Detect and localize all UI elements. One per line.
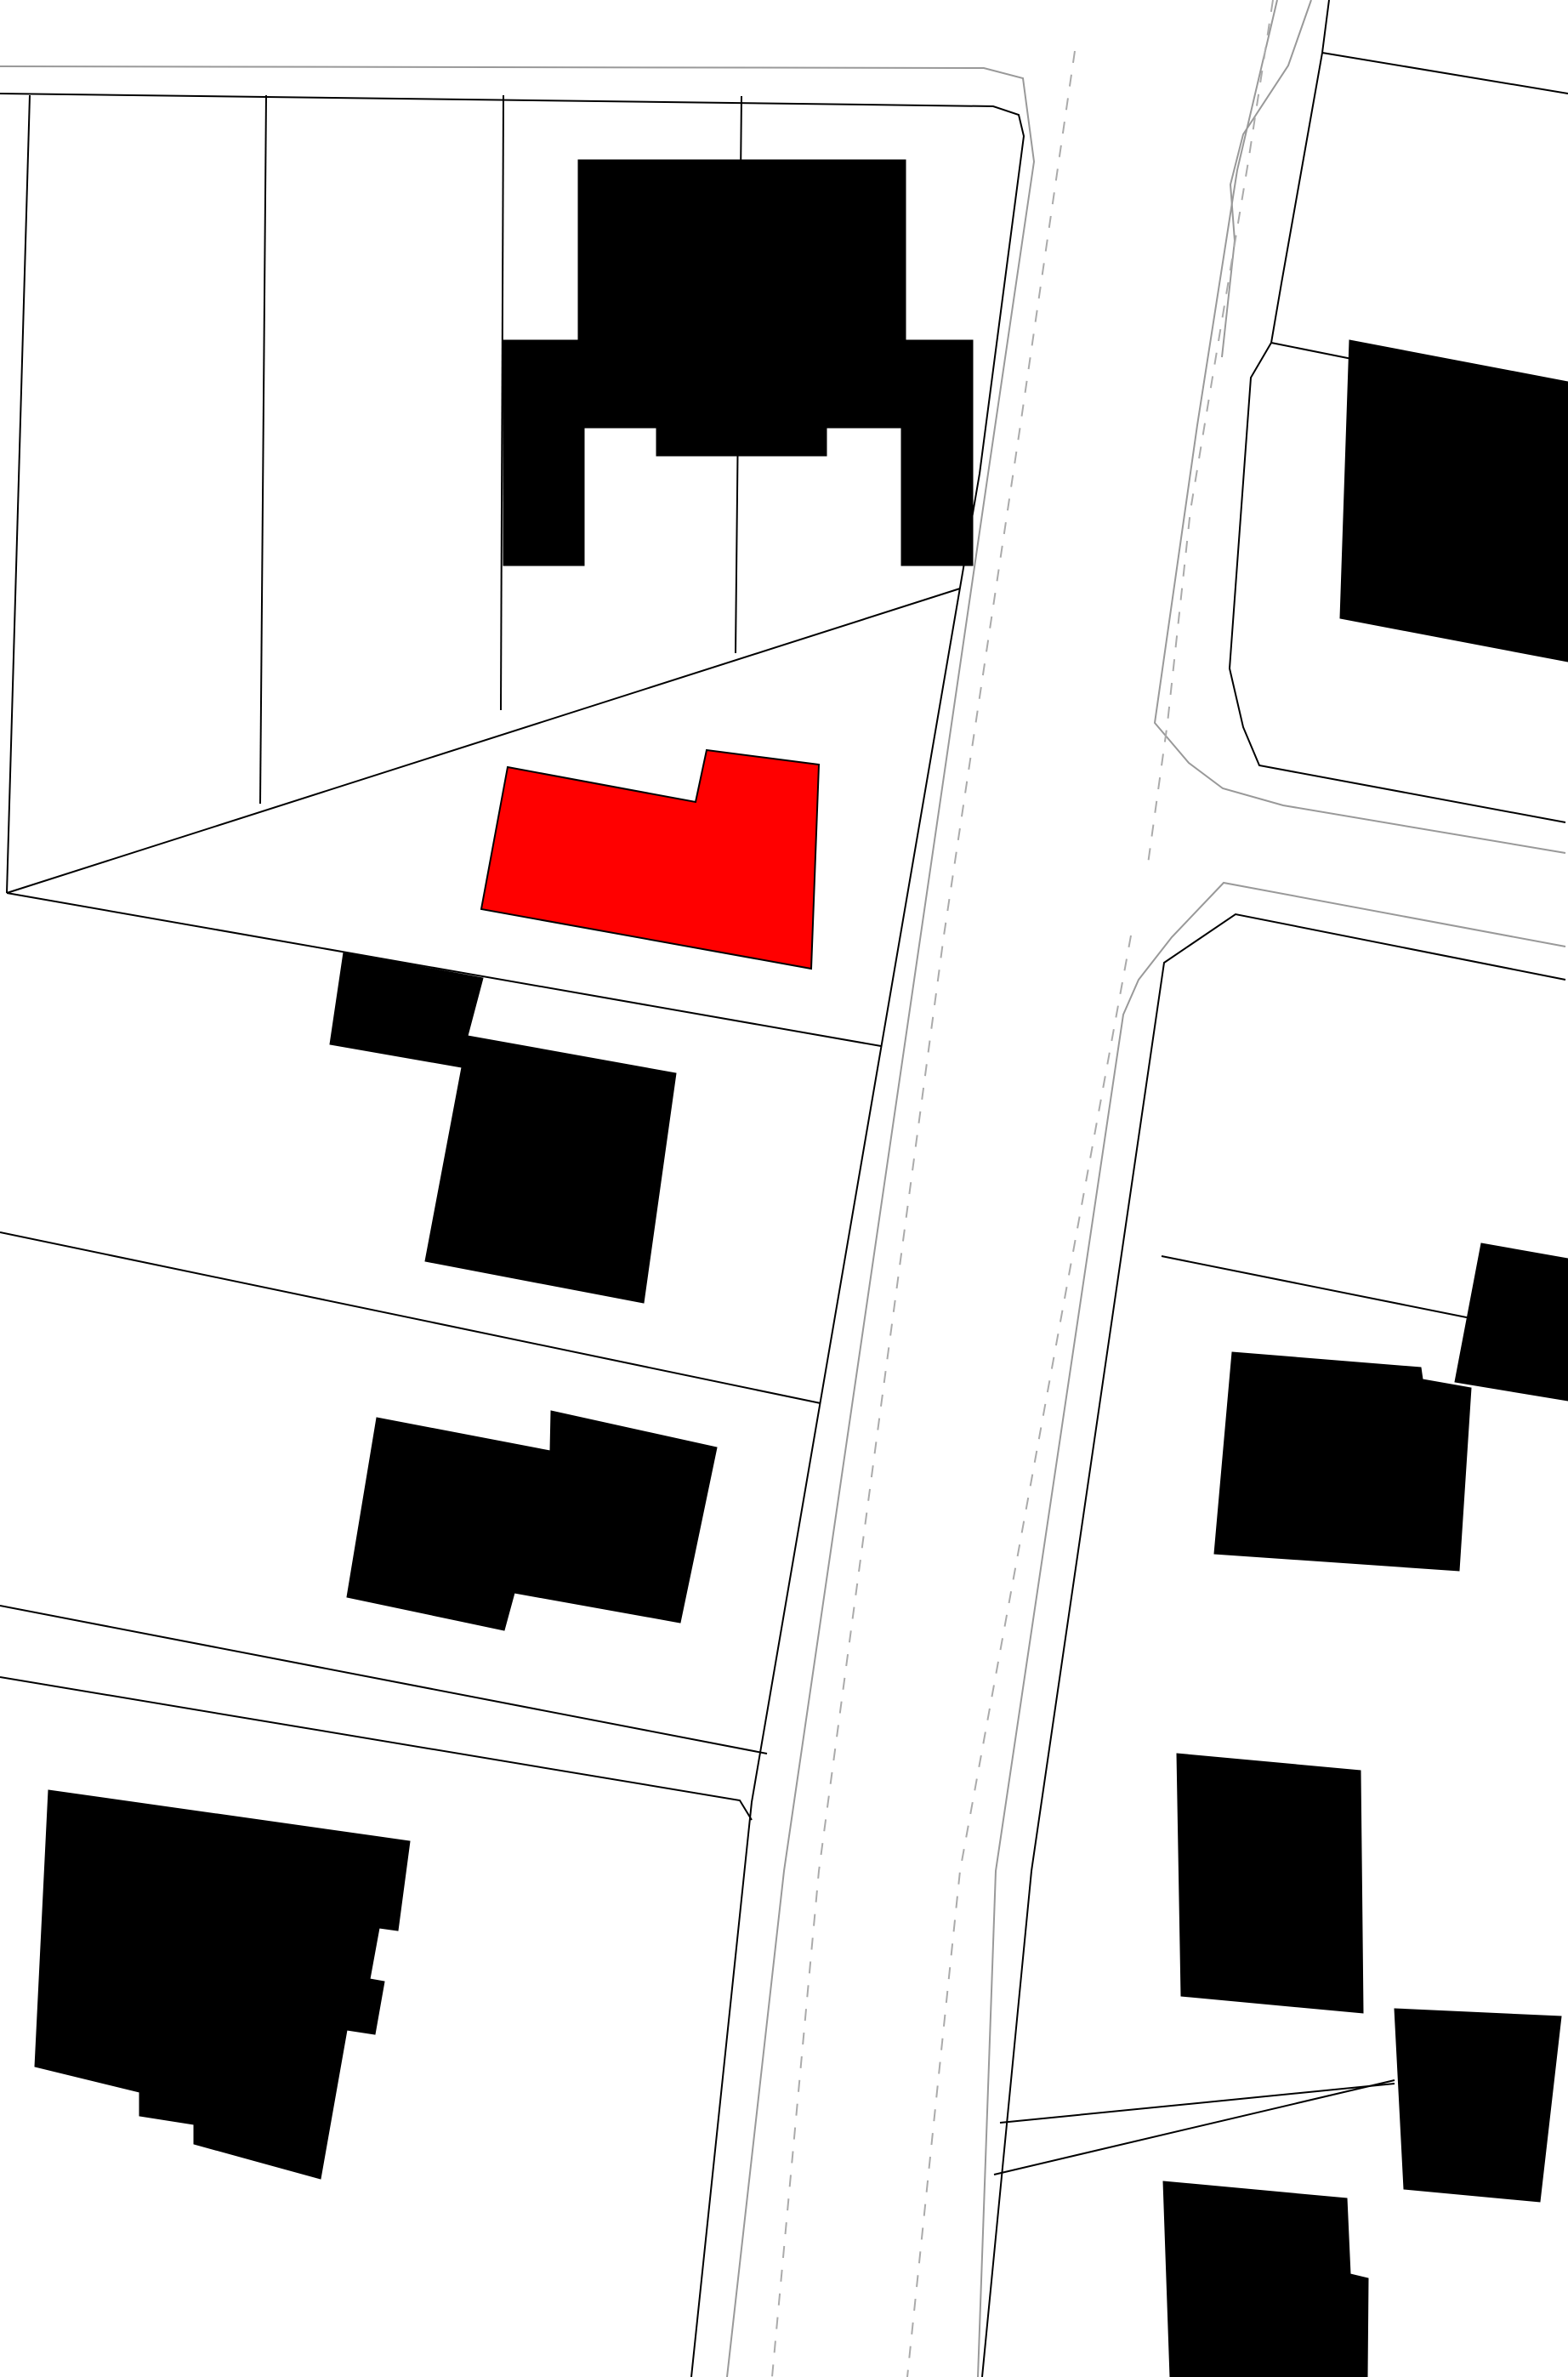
parcel-line-sliver-line-lower [994, 2080, 1395, 2175]
parcel-line-parcel-line-v2 [260, 95, 266, 804]
highlighted-parcel [481, 750, 819, 969]
parcel-line-triangle-upper-edge [7, 589, 960, 893]
parcel-line-parcel-line-v1 [7, 95, 30, 893]
parcel-line-parcel-line-e [0, 1606, 767, 1754]
buildings [35, 160, 1568, 2377]
building-building-bottom-right[interactable] [1395, 2009, 1561, 2202]
parcel-line-parcel-line-g [0, 1677, 752, 1820]
lane-dash-east-lane-dash-south [907, 935, 1131, 2377]
building-building-right-3[interactable] [1177, 1754, 1363, 2013]
lane-dash-east-lane-dash-north [1147, 0, 1273, 870]
parcel-line-east-parcel-line-1 [1322, 53, 1568, 94]
map-canvas [0, 0, 1568, 2377]
parcel-line-parcel-line-d [0, 1232, 821, 1403]
cadastral-map [0, 0, 1568, 2377]
building-building-right-2[interactable] [1214, 1352, 1471, 1571]
highlighted-highlighted-building[interactable] [481, 750, 819, 969]
building-building-right-1[interactable] [1455, 1243, 1568, 1401]
building-building-midleft-cluster-1[interactable] [330, 953, 676, 1303]
building-building-northeast[interactable] [1340, 340, 1568, 662]
building-building-top-center[interactable] [503, 160, 973, 566]
parcel-line-sliver-line-upper [1000, 2084, 1395, 2123]
building-building-midleft-cluster-2[interactable] [347, 1411, 717, 1630]
building-building-big-southwest[interactable] [35, 1790, 410, 2179]
building-building-bottom-edge[interactable] [1163, 2181, 1368, 2377]
